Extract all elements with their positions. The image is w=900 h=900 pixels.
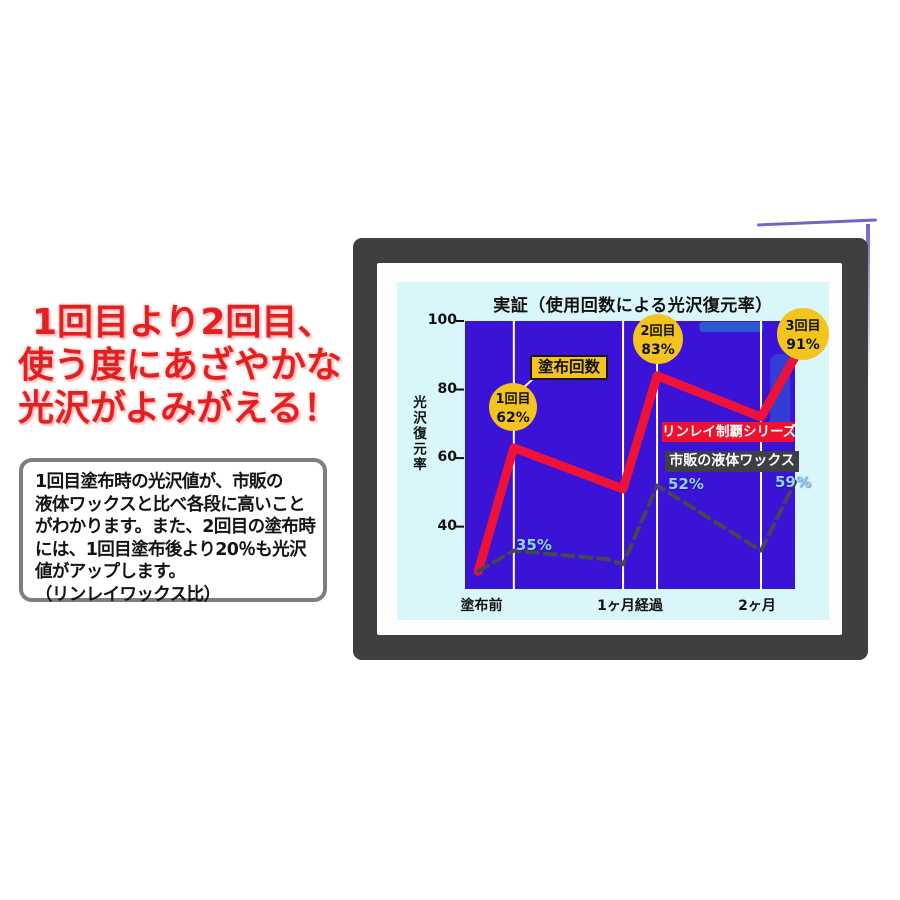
description-line: 1回目塗布時の光沢値が、市販の bbox=[35, 471, 317, 494]
chart-frame: 実証（使用回数による光沢復元率） 光沢復元率 1回目62%2回目83%3回目91… bbox=[353, 238, 868, 660]
description-line: 液体ワックスと比べ各段に高いこと bbox=[35, 494, 317, 517]
chart-overlays: 100806040塗布前1ヶ月経過2ヶ月35%52%59%リンレイ制覇シリーズ市… bbox=[397, 282, 829, 620]
chart-mat: 実証（使用回数による光沢復元率） 光沢復元率 1回目62%2回目83%3回目91… bbox=[377, 263, 842, 635]
x-axis-label: 1ヶ月経過 bbox=[597, 595, 663, 615]
competitor-value-label: 52% bbox=[668, 475, 704, 493]
y-tick-label: 60 bbox=[417, 449, 457, 465]
series-tag: 塗布回数 bbox=[530, 355, 608, 380]
headline: 1回目より2回目、 使う度にあざやかな 光沢がよみがえる！ bbox=[18, 301, 342, 430]
competitor-value-label: 59% bbox=[775, 473, 811, 491]
description-box: 1回目塗布時の光沢値が、市販の 液体ワックスと比べ各段に高いこと がわかります。… bbox=[19, 458, 327, 602]
legend-item: 市販の液体ワックス bbox=[665, 451, 799, 472]
advertisement-page: 1回目より2回目、 使う度にあざやかな 光沢がよみがえる！ 1回目塗布時の光沢値… bbox=[0, 0, 900, 900]
legend-item: リンレイ制覇シリーズ bbox=[662, 422, 794, 442]
competitor-value-label: 35% bbox=[516, 536, 552, 554]
description-line: 値がアップします。 bbox=[35, 561, 317, 584]
photo-edge-artifact-top bbox=[757, 218, 877, 226]
headline-line: 使う度にあざやかな bbox=[18, 344, 342, 387]
y-tick-label: 100 bbox=[417, 312, 457, 328]
chart-panel: 実証（使用回数による光沢復元率） 光沢復元率 1回目62%2回目83%3回目91… bbox=[397, 282, 829, 620]
y-tick-label: 40 bbox=[417, 518, 457, 534]
description-line: がわかります。また、2回目の塗布時 bbox=[35, 516, 317, 539]
headline-line: 光沢がよみがえる！ bbox=[18, 387, 342, 430]
y-tick-label: 80 bbox=[417, 381, 457, 397]
x-axis-label: 2ヶ月 bbox=[738, 595, 776, 615]
description-line: には、1回目塗布後より20％も光沢 bbox=[35, 539, 317, 562]
description-note: （リンレイワックス比） bbox=[35, 584, 317, 607]
headline-line: 1回目より2回目、 bbox=[18, 301, 342, 344]
x-axis-label: 塗布前 bbox=[461, 595, 503, 615]
